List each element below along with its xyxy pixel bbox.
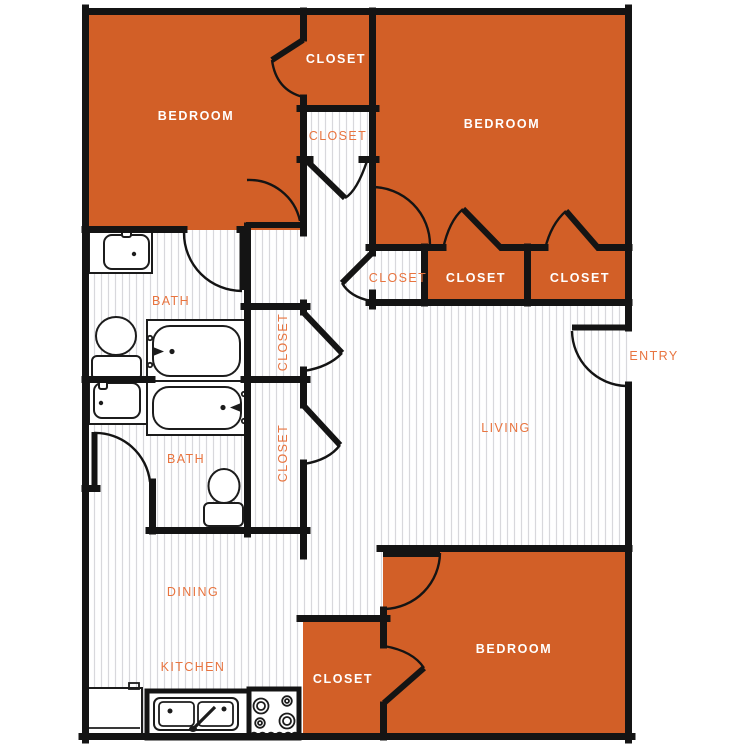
room-label-bedroom-3: BEDROOM <box>476 642 552 656</box>
room-label-closet-hall: CLOSET <box>309 129 367 143</box>
room-label-bath-1: BATH <box>152 294 190 308</box>
toilet-2-tank <box>204 503 243 526</box>
room-label-bedroom-1: BEDROOM <box>158 109 234 123</box>
sink-drain-icon <box>168 709 173 714</box>
stove <box>249 689 299 738</box>
tub-1 <box>153 326 240 376</box>
sink-drain-icon <box>222 707 227 712</box>
room-label-closet-row-1: CLOSET <box>446 271 506 285</box>
room-label-closet-top: CLOSET <box>306 52 366 66</box>
room-label-closet-a: CLOSET <box>276 313 290 371</box>
drain-1-icon <box>132 252 136 256</box>
sink-1 <box>104 235 149 269</box>
floor-plan-page: BEDROOM BEDROOM BEDROOM CLOSET CLOSET CL… <box>0 0 750 750</box>
room-label-closet-row-2: CLOSET <box>550 271 610 285</box>
drain-2-icon <box>99 401 103 405</box>
room-label-bath-2: BATH <box>167 452 205 466</box>
room-label-bedroom-2: BEDROOM <box>464 117 540 131</box>
room-label-closet-row-white: CLOSET <box>369 271 427 285</box>
kitchen-faucet-base <box>189 726 197 732</box>
toilet-1-bowl <box>96 317 136 355</box>
tub-2 <box>153 387 241 429</box>
room-bedroom-2 <box>372 15 625 251</box>
floor-plan: BEDROOM BEDROOM BEDROOM CLOSET CLOSET CL… <box>0 0 750 750</box>
room-label-kitchen: KITCHEN <box>161 660 226 674</box>
kitchen-fixtures <box>85 683 299 738</box>
tub-1-drain-icon <box>169 349 174 354</box>
room-bedroom-3 <box>383 549 625 733</box>
room-label-living: LIVING <box>481 421 530 435</box>
tub-2-drain-icon <box>220 405 225 410</box>
room-label-closet-b: CLOSET <box>276 424 290 482</box>
room-label-closet-3: CLOSET <box>313 672 373 686</box>
room-label-dining: DINING <box>167 585 219 599</box>
toilet-2-bowl <box>209 469 240 503</box>
room-label-entry: ENTRY <box>629 349 678 363</box>
